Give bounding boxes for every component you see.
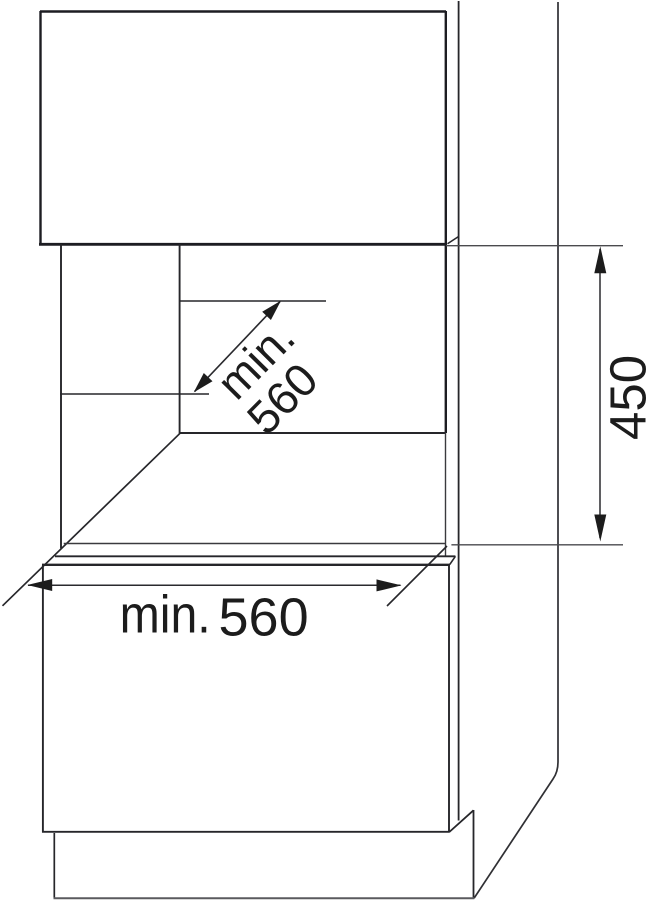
svg-text:560: 560: [219, 588, 309, 648]
svg-text:min.: min.: [120, 584, 211, 644]
svg-text:450: 450: [600, 355, 646, 440]
